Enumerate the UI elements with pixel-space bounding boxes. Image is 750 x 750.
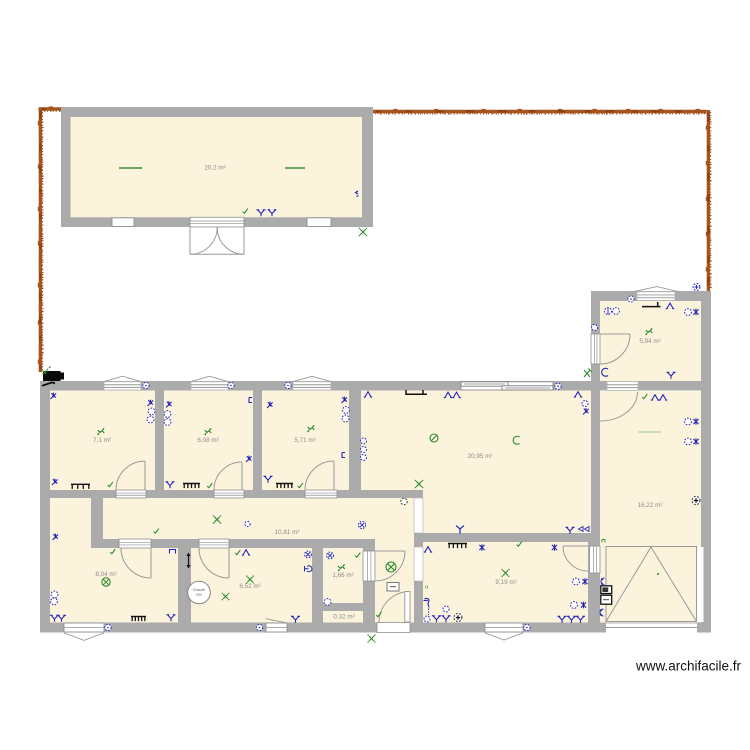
svg-text:20,95 m²: 20,95 m² bbox=[468, 453, 493, 460]
svg-text:7,1 m²: 7,1 m² bbox=[93, 437, 111, 444]
svg-text:Chauffe: Chauffe bbox=[193, 588, 206, 592]
svg-text:16,22 m²: 16,22 m² bbox=[638, 502, 663, 509]
svg-text:5,94 m²: 5,94 m² bbox=[639, 338, 660, 345]
svg-text:0,32 m²: 0,32 m² bbox=[333, 614, 354, 621]
svg-text:6,52 m²: 6,52 m² bbox=[239, 583, 260, 590]
svg-text:9,19 m²: 9,19 m² bbox=[495, 579, 516, 586]
svg-text:1,66 m²: 1,66 m² bbox=[332, 572, 353, 579]
svg-text:20,2 m²: 20,2 m² bbox=[204, 165, 225, 172]
svg-text:8,04 m²: 8,04 m² bbox=[95, 571, 116, 578]
svg-text:10,81 m²: 10,81 m² bbox=[275, 529, 300, 536]
svg-text:5,71 m²: 5,71 m² bbox=[294, 437, 315, 444]
svg-text:eau: eau bbox=[196, 593, 202, 597]
svg-text:www.archifacile.fr: www.archifacile.fr bbox=[635, 659, 742, 674]
svg-text:6,08 m²: 6,08 m² bbox=[197, 437, 218, 444]
